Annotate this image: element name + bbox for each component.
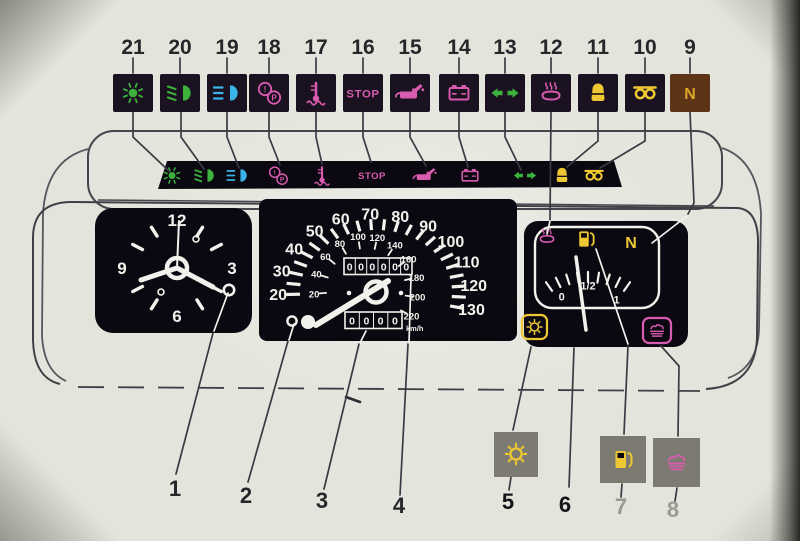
- label: 5: [502, 489, 514, 514]
- legend-icon-square: [653, 438, 700, 487]
- label: 50: [306, 224, 324, 241]
- label: 0: [358, 261, 364, 273]
- label: 120: [369, 233, 385, 244]
- diagram-svg: !PSTOP1236920304050607080901001101201302…: [0, 0, 800, 541]
- choke-icon: [592, 84, 605, 102]
- label: 0: [392, 315, 398, 327]
- label: 1: [169, 476, 181, 501]
- legend-icon-square: [494, 432, 538, 477]
- fuel-gauge-panel: N01/21: [522, 221, 688, 347]
- label: !: [264, 85, 267, 94]
- label: 20: [168, 36, 191, 59]
- top-legend: 21201918!P1716STOP1514131211109N: [113, 36, 710, 112]
- label: 140: [387, 241, 403, 252]
- label: 80: [335, 239, 346, 250]
- label: 2: [240, 483, 252, 508]
- label: 0: [559, 291, 565, 303]
- label: 21: [121, 36, 145, 59]
- clock-panel: 12369: [95, 208, 252, 333]
- label: N: [625, 235, 637, 252]
- label: P: [280, 177, 285, 184]
- label: 20: [309, 289, 320, 300]
- label: 0: [363, 315, 369, 327]
- label: 10: [633, 36, 656, 59]
- legend-square: [160, 74, 200, 112]
- label: 60: [332, 212, 350, 229]
- choke-icon: [557, 168, 568, 182]
- label: STOP: [346, 88, 379, 100]
- label: 120: [460, 278, 487, 295]
- label: 40: [285, 242, 303, 259]
- label: 9: [684, 36, 696, 59]
- neutral-icon: N: [625, 235, 637, 252]
- manual-page: !PSTOP1236920304050607080901001101201302…: [0, 0, 800, 541]
- label: 11: [587, 36, 610, 59]
- neutral-icon: N: [684, 86, 696, 103]
- label: 30: [273, 263, 291, 280]
- legend-square: [531, 74, 571, 112]
- label: 60: [320, 252, 331, 263]
- label: 7: [615, 494, 627, 519]
- label: 15: [398, 36, 422, 59]
- label: 0: [392, 261, 398, 273]
- label: 0: [347, 261, 353, 273]
- legend-square: [439, 74, 479, 112]
- label: 20: [269, 287, 287, 304]
- label: 4: [393, 493, 406, 518]
- label: 110: [454, 255, 480, 272]
- label: 1/2: [580, 281, 595, 293]
- stop-icon: STOP: [358, 171, 386, 182]
- label: 40: [311, 269, 322, 280]
- label: 8: [667, 497, 679, 522]
- stop-icon: STOP: [346, 88, 379, 100]
- label: 12: [539, 36, 562, 59]
- label: 18: [257, 36, 281, 59]
- label: 9: [117, 259, 126, 278]
- needle-stop: [301, 315, 315, 329]
- label: 12: [168, 211, 187, 230]
- label: 6: [559, 492, 571, 517]
- label: 0: [349, 315, 355, 327]
- label: 13: [493, 36, 516, 59]
- label: 6: [172, 307, 181, 326]
- label: 3: [316, 488, 328, 513]
- warning-strip: !PSTOP: [158, 161, 622, 189]
- legend-square: [485, 74, 525, 112]
- label: 80: [391, 209, 409, 226]
- label: 90: [419, 218, 437, 235]
- label: 3: [227, 259, 236, 278]
- label: 70: [361, 207, 379, 224]
- label: 19: [215, 36, 238, 59]
- speedometer-panel: 2030405060708090100110120130204060801001…: [259, 199, 517, 341]
- label: 0: [369, 261, 375, 273]
- label: 200: [410, 293, 426, 304]
- label: N: [684, 86, 696, 103]
- label: 0: [381, 261, 387, 273]
- label: 220: [404, 312, 420, 323]
- label: 100: [350, 232, 366, 243]
- label: 14: [447, 36, 471, 59]
- label: !: [274, 170, 276, 177]
- label: P: [271, 94, 277, 103]
- label: 130: [458, 302, 485, 319]
- label: 0: [378, 315, 384, 327]
- instrument-panel-diagram: !PSTOP1236920304050607080901001101201302…: [0, 0, 800, 541]
- label: 16: [351, 36, 374, 59]
- label: 0: [403, 261, 409, 273]
- label: 17: [304, 36, 327, 59]
- label: STOP: [358, 171, 386, 182]
- label: 100: [438, 234, 465, 251]
